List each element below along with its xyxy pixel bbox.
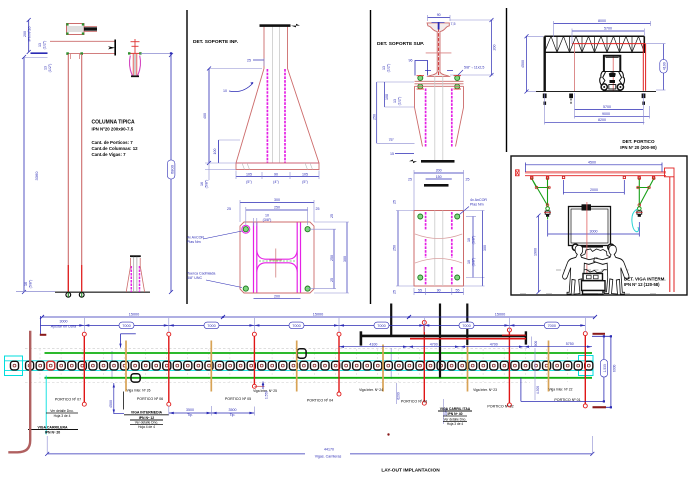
svg-text:COLUMNA TIPICA: COLUMNA TIPICA	[92, 120, 136, 126]
svg-text:4700: 4700	[430, 342, 438, 346]
svg-text:(5"): (5")	[246, 180, 252, 184]
svg-text:DET. VIGA INTERM.: DET. VIGA INTERM.	[624, 277, 666, 282]
svg-text:100: 100	[213, 149, 217, 155]
svg-text:Tip.: Tip.	[187, 413, 193, 417]
svg-text:(4"): (4")	[273, 180, 279, 184]
svg-text:250: 250	[373, 114, 377, 120]
svg-text:(5/8"): (5/8")	[205, 180, 209, 189]
svg-text:200: 200	[23, 31, 27, 37]
svg-text:Vigas. Carrileras: Vigas. Carrileras	[315, 454, 342, 458]
svg-text:5700: 5700	[604, 27, 612, 31]
svg-text:Cant. de Porticos: 7: Cant. de Porticos: 7	[92, 140, 134, 145]
svg-text:25: 25	[330, 278, 334, 282]
svg-text:7000: 7000	[122, 324, 130, 328]
svg-text:4x AnCOR: 4x AnCOR	[187, 236, 204, 240]
svg-text:Hoja 3 de 4: Hoja 3 de 4	[447, 422, 464, 426]
svg-text:5/8"→11x2,5: 5/8"→11x2,5	[464, 66, 484, 70]
svg-text:Cant.de Vigas: 7: Cant.de Vigas: 7	[92, 152, 127, 157]
svg-text:25: 25	[466, 178, 470, 182]
svg-text:(1/2"): (1/2")	[43, 41, 47, 50]
svg-text:Hoja 3 de 4: Hoja 3 de 4	[54, 414, 71, 418]
svg-text:Viga Inter. Nº 24: Viga Inter. Nº 24	[359, 388, 383, 392]
svg-text:DET. SOPORTE INF.: DET. SOPORTE INF.	[193, 39, 238, 45]
svg-text:(5"): (5")	[302, 180, 308, 184]
svg-text:25: 25	[227, 207, 231, 211]
svg-text:Ver detalle Dno.: Ver detalle Dno.	[50, 409, 74, 413]
svg-text:PORTICO Nº 07: PORTICO Nº 07	[55, 398, 81, 402]
svg-text:10: 10	[467, 260, 471, 264]
svg-text:400: 400	[203, 113, 207, 119]
svg-text:25: 25	[408, 178, 412, 182]
svg-text:4100: 4100	[662, 62, 666, 70]
svg-text:300: 300	[483, 245, 487, 251]
svg-text:IPN Nº 40: IPN Nº 40	[448, 412, 463, 416]
svg-text:DET. SOPORTE SUP.: DET. SOPORTE SUP.	[377, 41, 424, 47]
svg-text:4100: 4100	[369, 342, 377, 346]
svg-text:3500: 3500	[229, 408, 237, 412]
svg-text:DET. PORTICO: DET. PORTICO	[622, 139, 655, 144]
svg-text:7000: 7000	[292, 324, 300, 328]
svg-text:4.300: 4.300	[536, 386, 540, 394]
svg-text:15: 15	[390, 152, 394, 156]
svg-text:8200: 8200	[598, 118, 606, 122]
svg-text:VIGA CARRIL ITAA: VIGA CARRIL ITAA	[440, 407, 471, 411]
svg-text:25: 25	[393, 290, 397, 294]
svg-text:300: 300	[343, 256, 347, 262]
svg-text:15000: 15000	[313, 313, 324, 317]
svg-text:7000: 7000	[207, 324, 215, 328]
svg-text:90: 90	[437, 13, 441, 17]
svg-text:25: 25	[316, 207, 320, 211]
svg-text:VIGA INTERMEDIA: VIGA INTERMEDIA	[131, 411, 163, 415]
svg-text:Plas Nm: Plas Nm	[187, 240, 201, 244]
svg-text:3360: 3360	[34, 171, 39, 181]
svg-text:7000: 7000	[548, 324, 556, 328]
svg-text:Hoja 4 de 4: Hoja 4 de 4	[138, 425, 155, 429]
svg-text:25: 25	[393, 200, 397, 204]
svg-text:(5/8"): (5/8")	[29, 280, 33, 289]
svg-text:(3/8"): (3/8")	[472, 258, 476, 267]
svg-text:(1/2"): (1/2")	[48, 64, 52, 73]
svg-text:200: 200	[436, 169, 442, 173]
svg-text:250: 250	[330, 255, 334, 261]
svg-text:900: 900	[534, 341, 538, 347]
svg-text:7,5: 7,5	[451, 22, 456, 26]
svg-text:1.530: 1.530	[603, 364, 607, 372]
svg-text:Viga Inter. Nº 26: Viga Inter. Nº 26	[127, 388, 151, 392]
svg-text:75°: 75°	[389, 138, 395, 142]
svg-text:7000: 7000	[462, 324, 470, 328]
svg-text:13: 13	[44, 66, 48, 70]
svg-text:10: 10	[223, 89, 227, 93]
svg-text:(3/8"): (3/8")	[472, 236, 476, 245]
svg-text:3500: 3500	[186, 408, 194, 412]
svg-text:13: 13	[38, 43, 42, 47]
svg-text:150: 150	[436, 175, 442, 179]
svg-text:4500: 4500	[588, 160, 596, 164]
svg-text:IPN Nº 12: IPN Nº 12	[139, 416, 155, 420]
svg-text:55: 55	[418, 288, 422, 292]
svg-text:15000: 15000	[495, 313, 506, 317]
svg-text:5700: 5700	[603, 105, 611, 109]
svg-text:2000: 2000	[590, 188, 598, 192]
svg-text:9000: 9000	[602, 112, 610, 116]
svg-text:105: 105	[246, 172, 252, 176]
svg-text:IPN Nº20 200x90-7.5: IPN Nº20 200x90-7.5	[92, 126, 134, 131]
svg-text:IPN Nº 20: IPN Nº 20	[45, 431, 61, 435]
svg-text:3000: 3000	[60, 320, 68, 324]
svg-text:1.550: 1.550	[265, 391, 269, 399]
svg-text:Tip.: Tip.	[230, 413, 236, 417]
svg-text:16: 16	[200, 182, 204, 186]
svg-text:13: 13	[382, 66, 386, 70]
svg-text:4x AnCOR: 4x AnCOR	[470, 198, 487, 202]
svg-text:1900: 1900	[534, 248, 538, 256]
svg-text:6800: 6800	[169, 164, 174, 174]
svg-text:(3/8"): (3/8")	[263, 218, 272, 222]
svg-text:8000: 8000	[598, 19, 606, 23]
svg-text:(1/2"): (1/2")	[387, 64, 391, 73]
svg-text:13: 13	[393, 99, 397, 103]
svg-text:4500: 4500	[109, 400, 113, 408]
svg-text:6000: 6000	[613, 364, 617, 372]
svg-text:PORTICO Nº 03: PORTICO Nº 03	[401, 400, 427, 404]
svg-text:250: 250	[274, 206, 280, 210]
svg-text:25: 25	[247, 59, 251, 63]
svg-text:16: 16	[24, 282, 28, 286]
svg-text:3/8" UNC: 3/8" UNC	[187, 276, 202, 280]
svg-text:Plas Nm: Plas Nm	[470, 203, 484, 207]
svg-text:IPN Nº 20 (200-90): IPN Nº 20 (200-90)	[620, 145, 657, 150]
svg-text:3000: 3000	[590, 230, 598, 234]
svg-text:PORTICO Nº 06: PORTICO Nº 06	[137, 397, 163, 401]
svg-text:90: 90	[274, 172, 278, 176]
svg-text:200: 200	[274, 294, 280, 298]
svg-text:IPN Nº 12 (120-58): IPN Nº 12 (120-58)	[624, 282, 660, 287]
svg-text:4700: 4700	[490, 342, 498, 346]
svg-text:PORTICO Nº 05: PORTICO Nº 05	[225, 397, 251, 401]
svg-text:5750: 5750	[566, 342, 574, 346]
svg-text:VIGA CARRILERA: VIGA CARRILERA	[37, 425, 67, 429]
svg-text:105: 105	[302, 172, 308, 176]
svg-text:Cant.de Columnas: 12: Cant.de Columnas: 12	[92, 146, 139, 151]
svg-text:55: 55	[456, 288, 460, 292]
svg-text:Viga Inter. Nº 23: Viga Inter. Nº 23	[473, 388, 497, 392]
svg-text:4500: 4500	[521, 60, 525, 68]
svg-text:90: 90	[437, 288, 441, 292]
svg-text:10: 10	[265, 214, 269, 218]
svg-text:Viga Inter. Nº 22: Viga Inter. Nº 22	[549, 387, 573, 391]
svg-text:(1/2"): (1/2")	[398, 97, 402, 106]
svg-text:Ver detalle Dno.: Ver detalle Dno.	[135, 421, 159, 425]
svg-text:15000: 15000	[129, 313, 140, 317]
svg-text:44170: 44170	[324, 447, 334, 451]
svg-text:200: 200	[493, 45, 497, 51]
svg-text:300: 300	[274, 198, 280, 202]
svg-text:Tuerca Cadmiada: Tuerca Cadmiada	[187, 272, 215, 276]
svg-text:96: 96	[409, 59, 413, 63]
svg-text:7000: 7000	[377, 324, 385, 328]
svg-text:108: 108	[385, 94, 389, 100]
svg-text:PORTICO Nº 04: PORTICO Nº 04	[307, 399, 333, 403]
svg-text:10: 10	[467, 238, 471, 242]
svg-text:250: 250	[393, 245, 397, 251]
svg-text:6200: 6200	[397, 392, 401, 400]
svg-text:PORTICO Nº 02: PORTICO Nº 02	[487, 404, 513, 408]
svg-text:25: 25	[330, 214, 334, 218]
svg-text:LAY-OUT IMPLANTACION: LAY-OUT IMPLANTACION	[381, 467, 440, 473]
svg-text:IPN Nº20: IPN Nº20	[27, 27, 31, 42]
svg-text:Ver detalle Dno.: Ver detalle Dno.	[444, 417, 467, 421]
